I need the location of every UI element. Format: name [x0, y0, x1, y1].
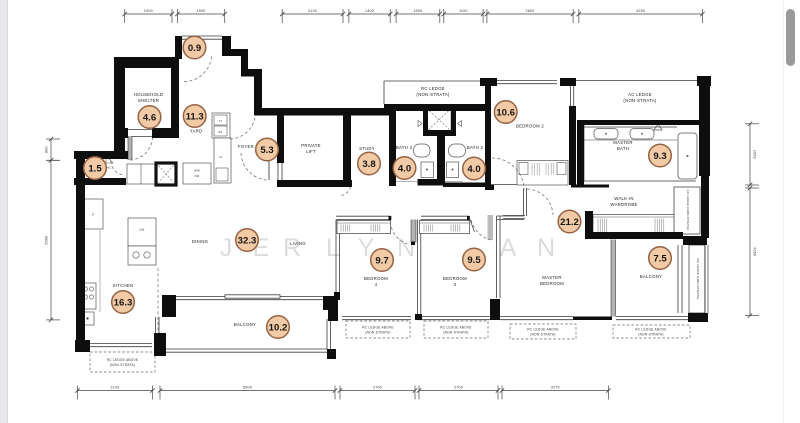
svg-text:BATH 2: BATH 2 — [467, 145, 484, 150]
svg-text:LIVING: LIVING — [290, 241, 306, 246]
svg-text:BATH 3: BATH 3 — [396, 145, 413, 150]
svg-text:BEDROOM 2: BEDROOM 2 — [516, 124, 544, 129]
svg-text:AC LEDGE (NON-STRATA): AC LEDGE (NON-STRATA) — [686, 190, 690, 231]
svg-text:4350: 4350 — [752, 247, 756, 256]
svg-text:WALK-IN: WALK-IN — [614, 196, 634, 201]
svg-text:11.3: 11.3 — [186, 111, 204, 122]
svg-text:DR: DR — [195, 174, 200, 178]
svg-text:1500: 1500 — [413, 9, 422, 13]
svg-text:SHELTER: SHELTER — [138, 98, 159, 103]
svg-text:AC LEDGE: AC LEDGE — [628, 92, 652, 97]
svg-text:YARD: YARD — [190, 129, 203, 134]
svg-text:BALCONY: BALCONY — [640, 274, 662, 279]
svg-text:(NON-STRATA): (NON-STRATA) — [443, 330, 468, 334]
svg-text:1.5: 1.5 — [88, 163, 102, 174]
svg-text:MASTER: MASTER — [542, 275, 561, 280]
svg-text:LIFT: LIFT — [306, 149, 316, 154]
svg-text:800: 800 — [45, 146, 49, 153]
svg-text:RC LEDGE: RC LEDGE — [421, 86, 445, 91]
svg-text:J: J — [220, 234, 233, 262]
svg-text:ST: ST — [219, 119, 223, 123]
svg-text:F: F — [92, 213, 94, 217]
svg-text:2100: 2100 — [111, 386, 120, 390]
svg-text:KITCHEN: KITCHEN — [113, 283, 134, 288]
svg-text:WARDROBE: WARDROBE — [610, 202, 637, 207]
svg-text:3275: 3275 — [551, 386, 560, 390]
svg-text:BS: BS — [219, 130, 223, 134]
svg-text:10.6: 10.6 — [496, 107, 515, 118]
svg-text:4250: 4250 — [636, 9, 645, 13]
svg-text:WC: WC — [106, 166, 111, 170]
svg-text:BEDROOM: BEDROOM — [443, 276, 467, 281]
svg-text:4.6: 4.6 — [143, 112, 156, 123]
svg-text:32.3: 32.3 — [238, 235, 257, 246]
svg-text:CH: CH — [139, 228, 145, 232]
svg-text:RC LEDGE ABOVE: RC LEDGE ABOVE — [635, 328, 667, 332]
svg-text:(NON-STRATA): (NON-STRATA) — [110, 363, 135, 367]
svg-text:(NON-STRATA): (NON-STRATA) — [530, 332, 555, 336]
svg-text:PRIVATE: PRIVATE — [301, 143, 321, 148]
svg-text:21.2: 21.2 — [560, 217, 579, 228]
svg-text:4: 4 — [375, 282, 378, 287]
svg-text:RC LEDGE (NON-STRATA): RC LEDGE (NON-STRATA) — [696, 258, 700, 299]
svg-text:DINING: DINING — [192, 239, 209, 244]
svg-text:5000: 5000 — [45, 236, 49, 245]
svg-text:1100: 1100 — [459, 9, 468, 13]
svg-text:RC LEDGE ABOVE: RC LEDGE ABOVE — [107, 358, 139, 362]
svg-text:(NON-STRATA): (NON-STRATA) — [623, 98, 656, 103]
svg-text:2700: 2700 — [373, 386, 382, 390]
svg-text:(NON-STRATA): (NON-STRATA) — [638, 332, 663, 336]
svg-text:5.3: 5.3 — [260, 145, 273, 156]
svg-text:HOUSEHOLD: HOUSEHOLD — [134, 92, 163, 97]
svg-text:9.5: 9.5 — [467, 255, 481, 266]
svg-text:RC LEDGE ABOVE: RC LEDGE ABOVE — [440, 326, 472, 330]
svg-text:0.9: 0.9 — [188, 43, 201, 54]
svg-text:9.7: 9.7 — [375, 255, 388, 266]
svg-text:(NON-STRATA): (NON-STRATA) — [365, 330, 390, 334]
svg-text:BEDROOM: BEDROOM — [364, 276, 388, 281]
svg-text:4.0: 4.0 — [398, 163, 411, 174]
svg-text:9.3: 9.3 — [653, 151, 666, 162]
svg-text:1400: 1400 — [365, 9, 374, 13]
svg-text:WM: WM — [194, 169, 200, 173]
svg-text:BATH: BATH — [617, 146, 629, 151]
svg-text:1000: 1000 — [144, 9, 153, 13]
svg-text:A: A — [500, 234, 517, 262]
svg-text:FOYER: FOYER — [238, 144, 254, 149]
svg-text:BALCONY: BALCONY — [234, 322, 256, 327]
svg-text:STUDY: STUDY — [359, 146, 375, 151]
svg-text:5500: 5500 — [243, 386, 252, 390]
svg-text:N: N — [537, 234, 555, 262]
svg-text:R: R — [283, 234, 301, 262]
svg-text:3.8: 3.8 — [362, 159, 376, 170]
svg-text:RC LEDGE ABOVE: RC LEDGE ABOVE — [362, 326, 394, 330]
svg-text:3: 3 — [454, 282, 457, 287]
svg-text:10.2: 10.2 — [269, 322, 288, 333]
svg-text:(NON-STRATA): (NON-STRATA) — [416, 92, 449, 97]
svg-text:1950: 1950 — [752, 150, 756, 159]
svg-text:L: L — [326, 234, 340, 262]
svg-text:2700: 2700 — [454, 386, 463, 390]
svg-text:2100: 2100 — [308, 9, 317, 13]
svg-text:SL: SL — [219, 155, 223, 159]
svg-text:4.0: 4.0 — [467, 164, 480, 175]
svg-text:16.3: 16.3 — [114, 297, 133, 308]
svg-text:1500: 1500 — [197, 9, 206, 13]
svg-text:RC LEDGE ABOVE: RC LEDGE ABOVE — [527, 328, 559, 332]
svg-text:2600: 2600 — [526, 9, 535, 13]
svg-text:MASTER: MASTER — [613, 140, 632, 145]
svg-text:7.5: 7.5 — [653, 253, 667, 264]
svg-text:BEDROOM: BEDROOM — [540, 281, 564, 286]
